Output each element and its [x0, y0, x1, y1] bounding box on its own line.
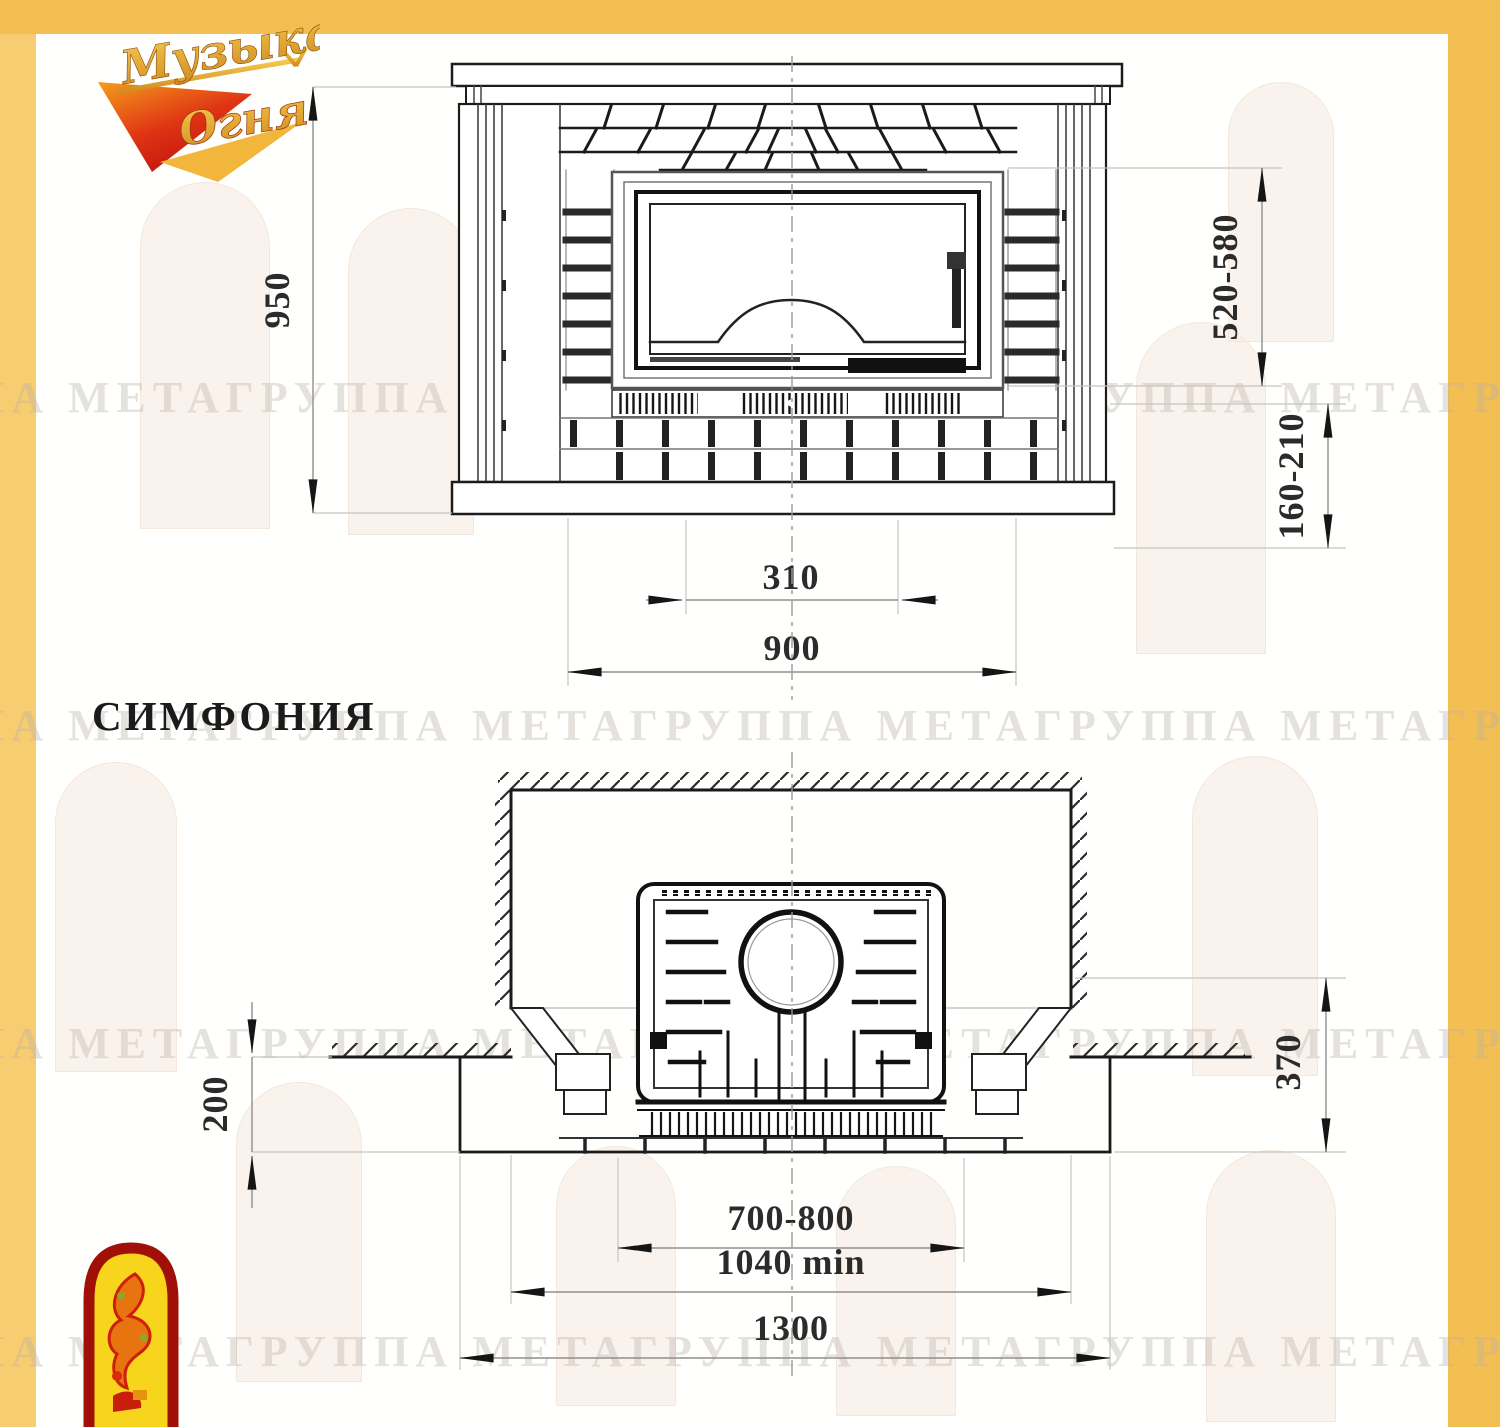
plan-view-drawing [330, 772, 1250, 1152]
dim-overall-height: 950 [257, 272, 297, 329]
front-view-drawing [452, 64, 1122, 514]
emblem-arch-icon [81, 1238, 181, 1427]
dim-grate-width: 310 [763, 557, 820, 597]
dim-base-height: 160-210 [1271, 413, 1311, 540]
dim-niche-to-hearth-front: 370 [1268, 1034, 1308, 1091]
dim-opening-height: 520-580 [1205, 214, 1245, 341]
model-title: СИМФОНИЯ [92, 692, 377, 740]
dim-niche-width: 1040 min [716, 1242, 865, 1282]
page: ПА МЕТАГРУППА МЕТАГРУППА МЕТАГРУППА МЕТА… [0, 0, 1500, 1427]
dim-hearth-front-depth: 200 [195, 1076, 235, 1133]
dim-hearth-width: 1300 [753, 1308, 829, 1348]
brand-word-1: Музыка [115, 4, 320, 95]
brand-logo: Музыка Огня [40, 4, 320, 199]
dim-insert-width: 700-800 [728, 1198, 855, 1238]
